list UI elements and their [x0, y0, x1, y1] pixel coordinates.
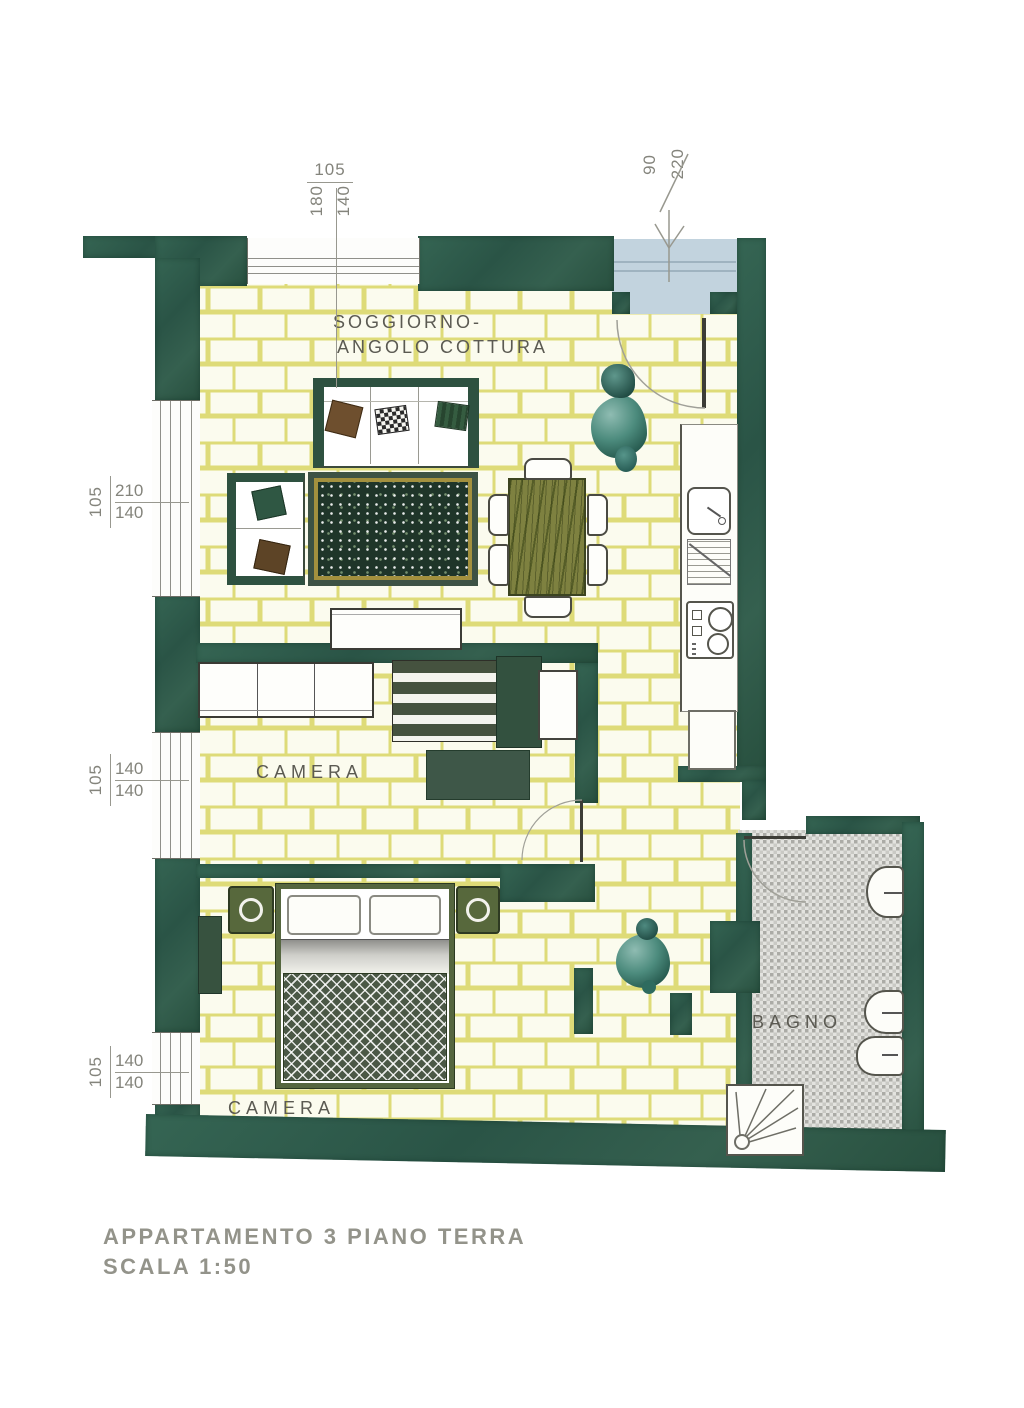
dim-lower: 140 [115, 1074, 189, 1093]
bidet [864, 990, 904, 1034]
wall-partition-camera2-hall-stub [500, 864, 595, 902]
cabinet-dark [496, 656, 542, 748]
sofa-cushion-divider [370, 387, 371, 464]
bed-sheet-fold [281, 939, 449, 974]
bidet-line [882, 1012, 902, 1014]
sofa-cushion-divider [418, 387, 419, 464]
window-glazing-line [248, 266, 419, 267]
dining-chair-right-2 [587, 544, 608, 586]
stove-burner-small [707, 633, 729, 655]
dim-upper: 140 [115, 1052, 189, 1071]
room-label-soggiorno-line1: SOGGIORNO- [333, 312, 482, 333]
kitchen-sink [687, 487, 731, 535]
dim-left-window-1: 105 210 140 [86, 476, 189, 528]
entry-door-leaf [702, 318, 706, 408]
dim-top-width: 105 [314, 160, 345, 180]
nightstand-left [228, 886, 274, 934]
wall-top-mid [418, 236, 614, 291]
dim-width: 105 [86, 764, 106, 795]
dining-table [508, 478, 586, 596]
dining-chair-top [524, 458, 572, 480]
window-glazing-line [191, 401, 192, 596]
stove-burner-large [708, 607, 733, 632]
window-glazing-line [248, 258, 419, 259]
washbasin-drain [882, 1054, 898, 1056]
plan-title: APPARTAMENTO 3 PIANO TERRA [103, 1224, 526, 1250]
fridge [688, 710, 736, 770]
cabinet-white [538, 670, 578, 740]
wall-partition-hall-2 [670, 993, 692, 1035]
kitchen-counter [680, 424, 738, 712]
plant-leaf-blob [636, 918, 658, 940]
stove-grate-square [692, 610, 702, 620]
shower [726, 1084, 804, 1156]
room-label-bagno: BAGNO [752, 1012, 842, 1033]
bed-pillow-left [287, 895, 361, 935]
dim-lower: 140 [115, 782, 189, 801]
dim-upper: 140 [115, 760, 189, 779]
dim-upper: 210 [115, 482, 189, 501]
dim-rule [110, 476, 111, 528]
kitchen-faucet-icon [718, 517, 726, 525]
nightstand-lamp-icon [466, 898, 490, 922]
dim-width: 105 [86, 486, 106, 517]
dim-left-window-3: 105 140 140 [86, 1046, 189, 1098]
wall-partition-camera1-camera2 [196, 864, 508, 878]
window-glazing-line [191, 733, 192, 858]
dim-top-upper: 180 [307, 185, 327, 216]
window-glazing-line [248, 273, 419, 274]
wardrobe-door-divider [314, 664, 315, 716]
nightstand-lamp-icon [239, 898, 263, 922]
armchair-pillow-brown [253, 539, 291, 575]
wall-partition-hall-1 [574, 968, 593, 1034]
floor-plan-page: SOGGIORNO- ANGOLO COTTURA CAMERA CAMERA … [0, 0, 1024, 1408]
dim-extension-line-top [336, 188, 337, 388]
toilet-seat-line [884, 892, 902, 894]
dim-rule [307, 182, 353, 183]
dim-width: 105 [86, 1056, 106, 1087]
room-label-camera1: CAMERA [256, 762, 363, 783]
shower-rays-icon [728, 1086, 802, 1154]
plant-entry [585, 362, 655, 474]
dim-rule [110, 754, 111, 806]
wardrobe-base-line [200, 710, 372, 711]
radiator [198, 916, 222, 994]
wardrobe [198, 662, 374, 718]
plant-leaf-blob [642, 980, 656, 994]
dim-left-window-2: 105 140 140 [86, 754, 189, 806]
washbasin [856, 1036, 904, 1076]
dim-entry-arrow-icon [640, 146, 696, 286]
wall-right-link [742, 780, 766, 820]
wall-bagno-right [902, 822, 924, 1154]
camera1-door-leaf [580, 800, 583, 862]
stove-grate-square [692, 626, 702, 636]
dining-chair-bottom [524, 596, 572, 618]
sofa [313, 378, 479, 468]
wall-vestibule-left-jamb [612, 292, 630, 314]
bed-blanket [283, 973, 447, 1081]
tv-cabinet-line [332, 614, 460, 615]
plan-scale: SCALA 1:50 [103, 1254, 253, 1280]
window-top [247, 238, 420, 284]
plant-leaf-blob [615, 446, 637, 472]
wall-vestibule-right-jamb [710, 292, 737, 314]
wall-right-kitchen [737, 238, 766, 770]
wall-left-1 [155, 258, 200, 400]
plant-leaf-blob [601, 364, 635, 398]
window-glazing-line [191, 1033, 192, 1104]
wall-partition-camera1-hall [575, 663, 598, 803]
bagno-door-leaf [744, 836, 806, 839]
dim-lower: 140 [115, 504, 189, 523]
floor-vestibule-step [630, 294, 712, 314]
plant-leaf-blob [616, 934, 670, 988]
armchair-cushion-divider [236, 528, 301, 529]
rug-border [314, 478, 472, 580]
wardrobe-door-divider [257, 664, 258, 716]
rug [308, 472, 478, 586]
desk [426, 750, 530, 800]
plant-hall [612, 918, 676, 996]
armchair [227, 473, 305, 585]
wall-bagno-column [710, 921, 760, 993]
stove-knobs [692, 641, 696, 655]
dining-chair-left-1 [488, 494, 509, 536]
sofa-pillow-brown [325, 400, 364, 439]
dining-chair-right-1 [587, 494, 608, 536]
stove [686, 601, 734, 659]
room-label-camera2: CAMERA [228, 1098, 335, 1119]
dim-rule [110, 1046, 111, 1098]
toilet [866, 866, 904, 918]
striped-dresser [392, 660, 500, 742]
bed-pillow-right [369, 895, 441, 935]
room-label-soggiorno-line2: ANGOLO COTTURA [337, 337, 548, 358]
dim-top-window: 105 180 140 [300, 160, 360, 216]
dining-chair-left-2 [488, 544, 509, 586]
wall-left-2 [155, 595, 200, 732]
wall-left-3 [155, 857, 200, 1032]
dim-entry-door: 90 220 [640, 146, 696, 286]
tv-cabinet [330, 608, 462, 650]
sofa-pillow-checkered [374, 405, 409, 435]
sofa-pillow-green [434, 401, 469, 431]
double-bed [276, 884, 454, 1088]
nightstand-right [456, 886, 500, 934]
armchair-pillow-green [251, 485, 287, 521]
